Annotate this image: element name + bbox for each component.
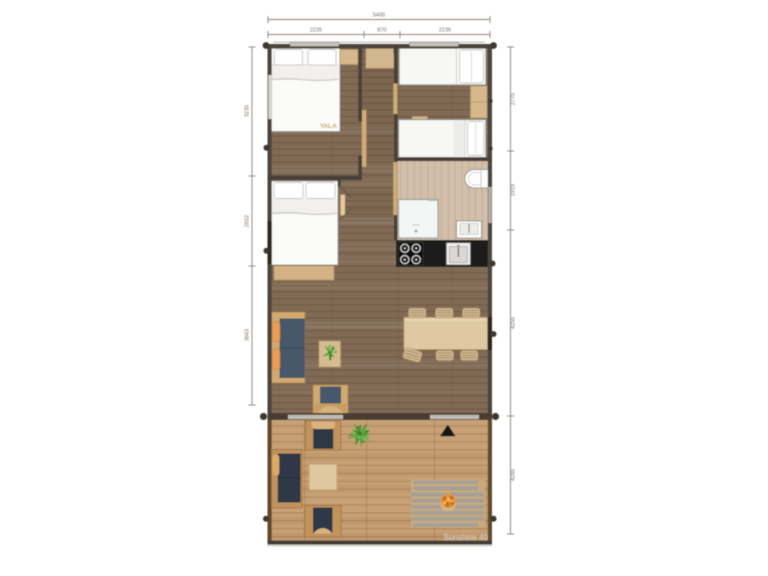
svg-text:1919: 1919 bbox=[511, 184, 517, 196]
svg-text:2235: 2235 bbox=[310, 28, 322, 34]
svg-text:YALA: YALA bbox=[320, 123, 337, 130]
svg-text:5400: 5400 bbox=[373, 13, 385, 19]
svg-text:2770: 2770 bbox=[511, 93, 517, 105]
svg-text:3235: 3235 bbox=[245, 105, 251, 117]
svg-text:870: 870 bbox=[377, 28, 386, 34]
svg-text:2235: 2235 bbox=[439, 28, 451, 34]
svg-text:2652: 2652 bbox=[245, 215, 251, 227]
svg-text:Sunshine 49: Sunshine 49 bbox=[444, 533, 489, 542]
svg-text:3663: 3663 bbox=[245, 329, 251, 341]
svg-text:4250: 4250 bbox=[511, 317, 517, 329]
svg-text:4280: 4280 bbox=[511, 469, 517, 481]
